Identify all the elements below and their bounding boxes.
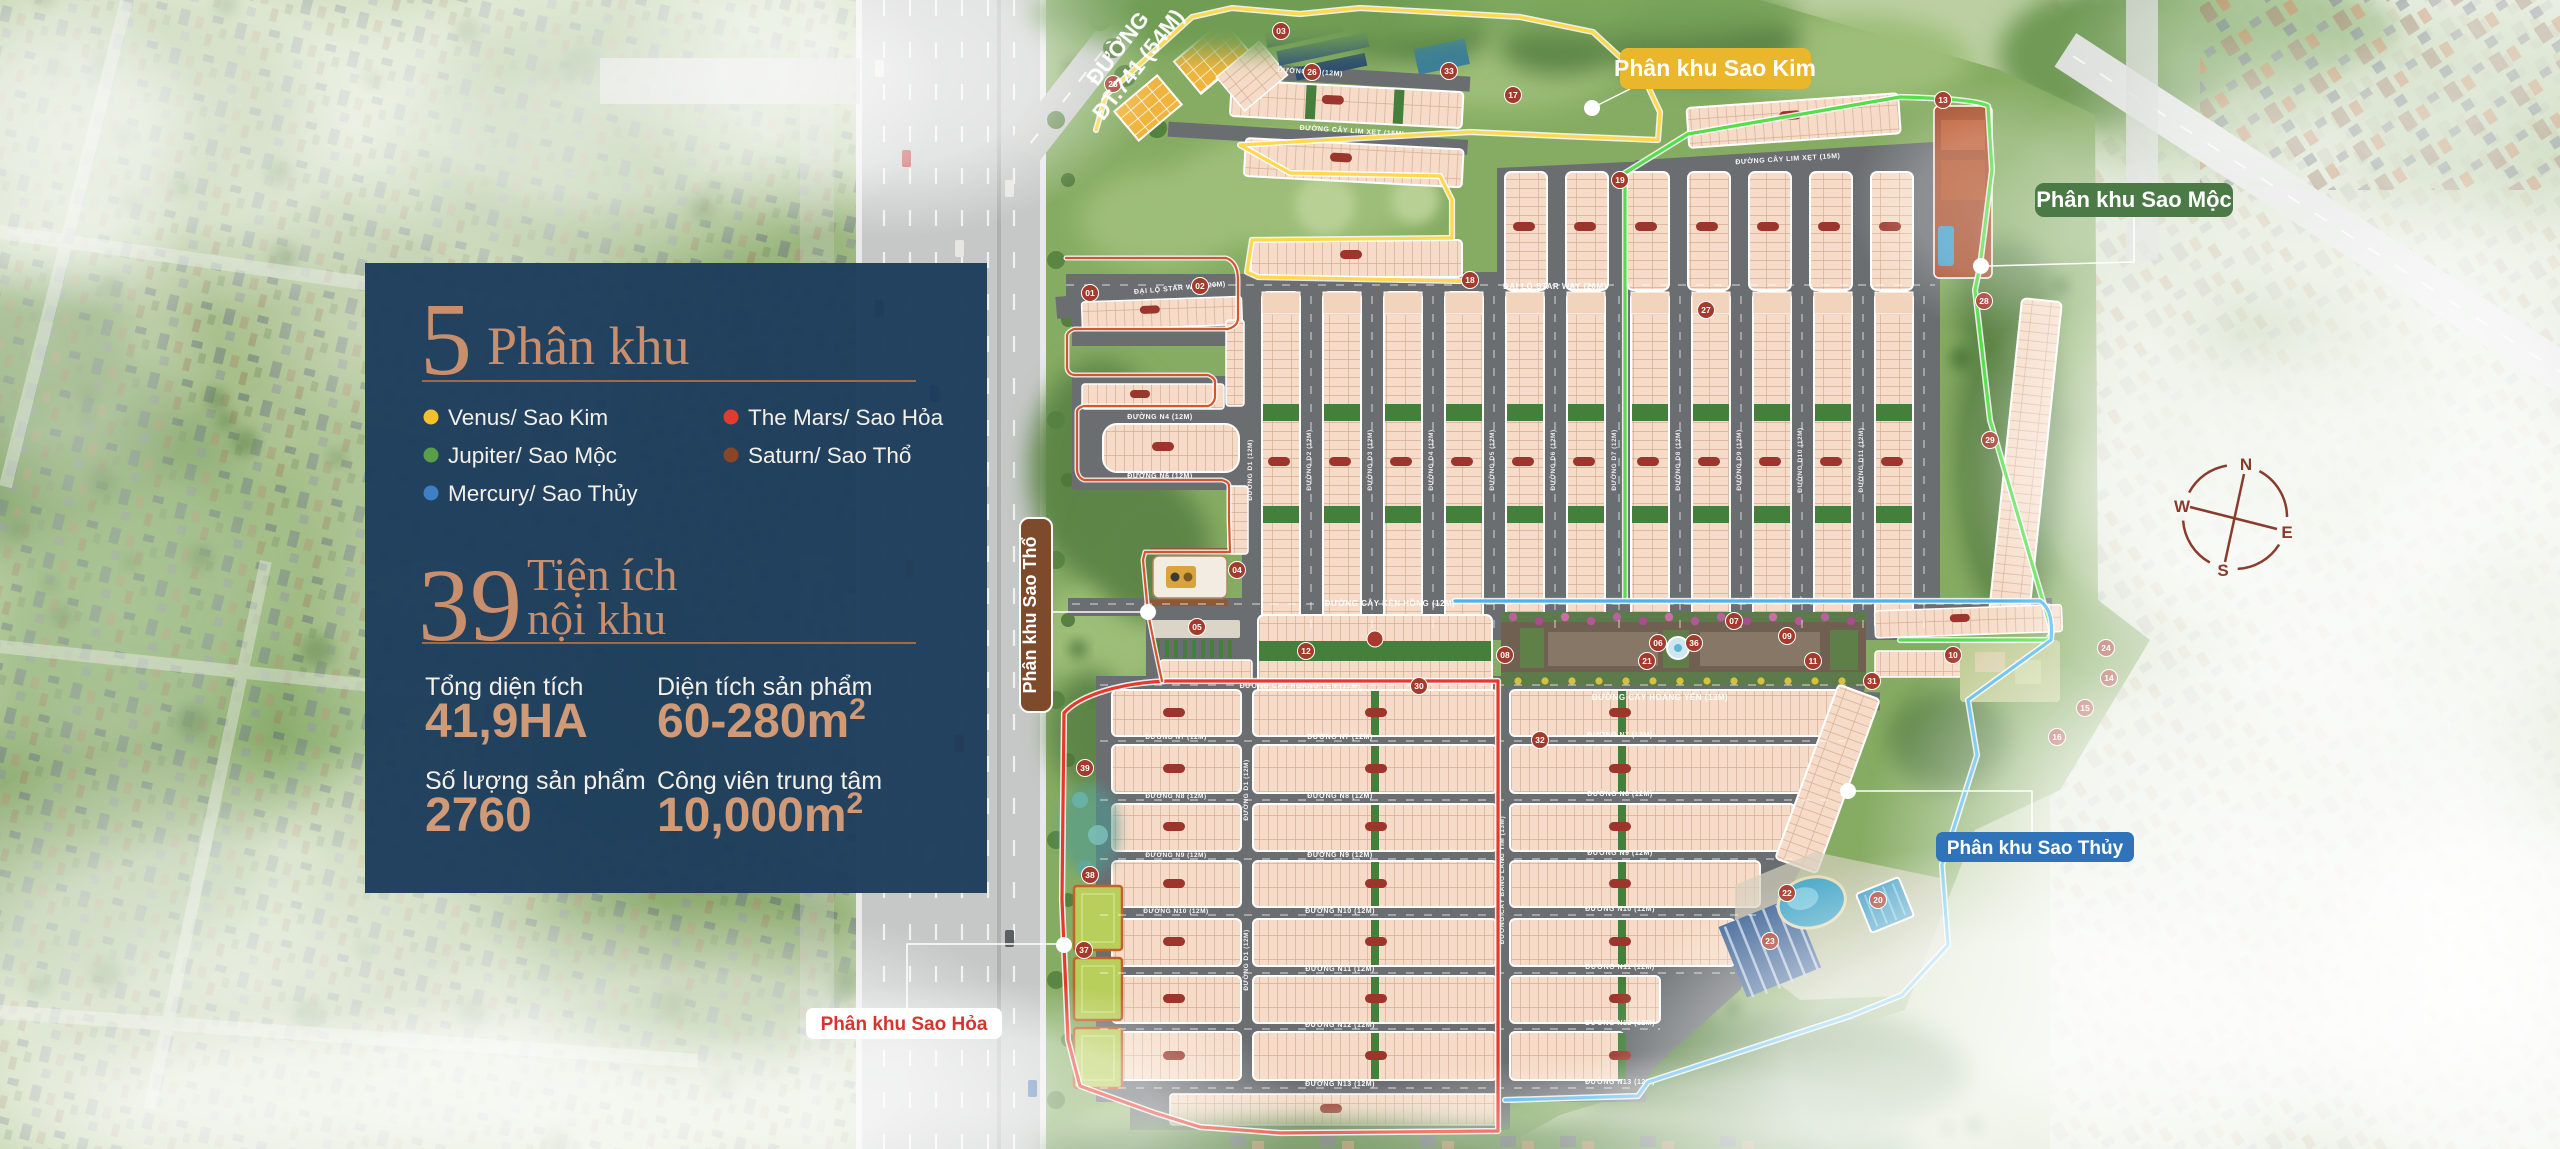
svg-text:07: 07 [1729,616,1739,626]
svg-text:ĐƯỜNG N11 (12M): ĐƯỜNG N11 (12M) [1305,964,1374,973]
svg-text:2760: 2760 [425,789,532,842]
svg-text:Phân khu: Phân khu [487,316,690,376]
svg-text:ĐƯỜNG N8 (12M): ĐƯỜNG N8 (12M) [1145,791,1206,800]
svg-text:39: 39 [418,548,522,663]
svg-text:17: 17 [1508,90,1518,100]
svg-text:05: 05 [1192,622,1202,632]
svg-text:06: 06 [1653,638,1663,648]
svg-text:W: W [2174,497,2191,516]
svg-text:Mercury/ Sao Thủy: Mercury/ Sao Thủy [448,481,638,506]
svg-text:The Mars/ Sao Hỏa: The Mars/ Sao Hỏa [748,405,944,430]
svg-text:38: 38 [1085,870,1095,880]
svg-text:ĐƯỜNG N7 (12M): ĐƯỜNG N7 (12M) [1145,732,1206,741]
svg-text:21: 21 [1642,656,1652,666]
svg-text:Phân khu Sao Hỏa: Phân khu Sao Hỏa [821,1014,988,1035]
svg-text:ĐƯỜNG D1 (12M): ĐƯỜNG D1 (12M) [1245,439,1254,500]
svg-text:ĐƯỜNG N4 (12M): ĐƯỜNG N4 (12M) [1127,412,1192,421]
svg-text:32: 32 [1535,735,1545,745]
svg-text:02: 02 [1195,281,1205,291]
svg-text:ĐƯỜNG N10 (12M): ĐƯỜNG N10 (12M) [1585,904,1655,913]
svg-text:ĐƯỜNG D1 (12M): ĐƯỜNG D1 (12M) [1241,929,1250,990]
svg-text:ĐƯỜNG D2 (12M): ĐƯỜNG D2 (12M) [1304,429,1313,490]
svg-text:Phân khu Sao Mộc: Phân khu Sao Mộc [2036,187,2232,212]
svg-text:ĐƯỜNG D11 (12M): ĐƯỜNG D11 (12M) [1856,427,1865,492]
svg-text:ĐƯỜNG N10 (12M): ĐƯỜNG N10 (12M) [1143,906,1208,915]
svg-text:30: 30 [1414,681,1424,691]
svg-text:ĐƯỜNG N7 (12M): ĐƯỜNG N7 (12M) [1587,730,1652,739]
svg-text:60-280m2: 60-280m2 [657,693,866,748]
svg-text:Venus/ Sao Kim: Venus/ Sao Kim [448,405,608,430]
svg-text:nội khu: nội khu [527,593,666,644]
svg-text:ĐƯỜNG N7 (12M): ĐƯỜNG N7 (12M) [1307,732,1372,741]
svg-text:01: 01 [1085,288,1095,298]
svg-text:09: 09 [1782,631,1792,641]
svg-text:ĐƯỜNG D9 (12M): ĐƯỜNG D9 (12M) [1734,429,1743,490]
svg-text:03: 03 [1276,26,1286,36]
svg-text:04: 04 [1232,565,1242,575]
svg-text:12: 12 [1301,646,1311,656]
svg-text:33: 33 [1444,66,1454,76]
svg-text:ĐƯỜNG D7 (12M): ĐƯỜNG D7 (12M) [1609,429,1618,490]
svg-text:ĐẠI LỘ STAR WAY (20M): ĐẠI LỘ STAR WAY (20M) [1503,282,1607,291]
svg-text:ĐƯỜNG N9 (12M): ĐƯỜNG N9 (12M) [1587,848,1652,857]
svg-text:ĐƯỜNG D10 (12M): ĐƯỜNG D10 (12M) [1795,427,1804,492]
svg-text:ĐƯỜNG D1 (12M): ĐƯỜNG D1 (12M) [1241,759,1250,820]
svg-text:ĐƯỜNG N9 (12M): ĐƯỜNG N9 (12M) [1145,850,1206,859]
svg-text:E: E [2281,523,2292,542]
svg-text:Phân khu Sao Kim: Phân khu Sao Kim [1614,55,1816,81]
svg-text:ĐƯỜNG D5 (12M): ĐƯỜNG D5 (12M) [1487,429,1496,490]
svg-text:39: 39 [1080,763,1090,773]
svg-text:19: 19 [1615,175,1625,185]
svg-text:10,000m2: 10,000m2 [657,787,863,842]
svg-text:S: S [2217,561,2228,580]
svg-text:ĐƯỜNG D8 (12M): ĐƯỜNG D8 (12M) [1673,429,1682,490]
svg-text:ĐƯỜNG D4 (12M): ĐƯỜNG D4 (12M) [1426,429,1435,490]
svg-text:18: 18 [1465,275,1475,285]
svg-text:ĐƯỜNG CÂY HOÀNG YẾN (13M): ĐƯỜNG CÂY HOÀNG YẾN (13M) [1592,692,1728,702]
svg-text:Phân khu Sao Thủy: Phân khu Sao Thủy [1947,838,2124,859]
svg-text:ĐƯỜNG N12 (12M): ĐƯỜNG N12 (12M) [1305,1020,1375,1029]
svg-text:37: 37 [1079,945,1089,955]
svg-text:ĐƯỜNG N8 (12M): ĐƯỜNG N8 (12M) [1307,791,1372,800]
svg-text:Phân khu Sao Thổ: Phân khu Sao Thổ [1020,536,1040,693]
svg-text:ĐƯỜNG D6 (12M): ĐƯỜNG D6 (12M) [1548,429,1557,490]
svg-text:36: 36 [1689,638,1699,648]
svg-text:ĐƯỜNG CÂY KÈN HỒNG (12M): ĐƯỜNG CÂY KÈN HỒNG (12M) [1325,598,1456,608]
svg-text:Saturn/ Sao Thổ: Saturn/ Sao Thổ [748,443,911,468]
svg-text:ĐƯỜNG N9 (12M): ĐƯỜNG N9 (12M) [1307,850,1372,859]
svg-text:ĐƯỜNG N8 (12M): ĐƯỜNG N8 (12M) [1587,789,1652,798]
svg-text:N: N [2240,455,2252,474]
svg-text:ĐƯỜNG N10 (12M): ĐƯỜNG N10 (12M) [1305,906,1375,915]
svg-text:Jupiter/ Sao Mộc: Jupiter/ Sao Mộc [448,443,617,468]
svg-text:08: 08 [1500,650,1510,660]
svg-text:5: 5 [420,282,472,397]
svg-text:ĐƯỜNG D3 (12M): ĐƯỜNG D3 (12M) [1365,429,1374,490]
svg-text:26: 26 [1307,67,1317,77]
svg-text:31: 31 [1867,676,1877,686]
svg-text:27: 27 [1701,305,1711,315]
svg-text:11: 11 [1809,656,1818,666]
svg-text:41,9HA: 41,9HA [425,695,588,748]
